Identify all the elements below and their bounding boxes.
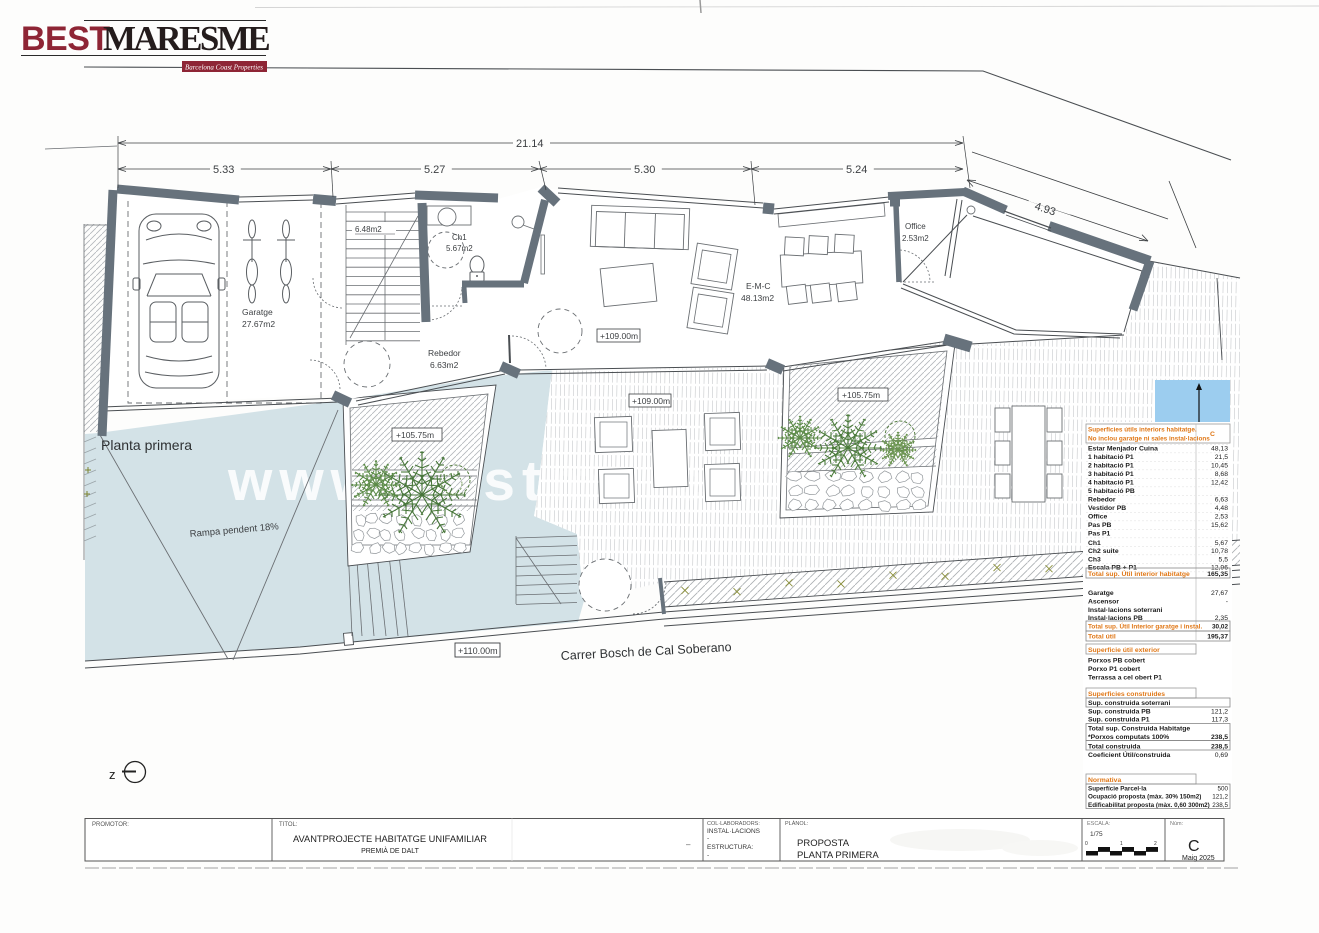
svg-text:Office: Office [1088,514,1107,521]
svg-text:4 habitació P1: 4 habitació P1 [1088,480,1134,487]
svg-text:5.67m2: 5.67m2 [446,244,473,253]
svg-text:Terrassa a cel obert P1: Terrassa a cel obert P1 [1088,675,1162,682]
svg-text:Barcelona Coast Properties: Barcelona Coast Properties [185,64,263,72]
svg-text:2 habitació P1: 2 habitació P1 [1088,463,1134,470]
svg-text:30,02: 30,02 [1212,624,1228,631]
svg-text:C: C [1210,431,1215,438]
svg-text:Superficies útils interiors ha: Superficies útils interiors habitatge. [1088,427,1197,434]
svg-text:PLANTA PRIMERA: PLANTA PRIMERA [797,850,879,861]
svg-text:195,37: 195,37 [1207,634,1228,641]
svg-text:Office: Office [905,222,926,231]
svg-text:C: C [1188,838,1200,855]
svg-text:Instal·lacions soterrani: Instal·lacions soterrani [1088,607,1163,614]
svg-text:1 habitació P1: 1 habitació P1 [1088,454,1134,461]
svg-text:*Porxos computats 100%: *Porxos computats 100% [1088,734,1169,741]
svg-text:Ch1: Ch1 [452,233,467,242]
svg-text:1/75: 1/75 [1090,831,1103,838]
svg-text:+105.75m: +105.75m [396,430,434,440]
svg-text:0,69: 0,69 [1215,752,1228,759]
svg-text:3 habitació P1: 3 habitació P1 [1088,471,1134,478]
svg-text:48,13: 48,13 [1211,446,1228,453]
svg-text:Estar Menjador Cuina: Estar Menjador Cuina [1088,446,1158,453]
svg-text:Sup. construida PB: Sup. construida PB [1088,709,1151,716]
svg-text:PROMOTOR:: PROMOTOR: [92,822,129,828]
svg-text:8,68: 8,68 [1215,471,1228,478]
svg-text:COL·LABORADORS:: COL·LABORADORS: [707,821,760,827]
svg-text:Porxos PB cobert: Porxos PB cobert [1088,658,1146,665]
svg-text:Núm:: Núm: [1170,821,1184,827]
svg-text:238,5: 238,5 [1211,744,1228,751]
svg-text:Vestidor PB: Vestidor PB [1088,505,1126,512]
svg-text:165,35: 165,35 [1207,571,1228,578]
svg-text:Ch2 suite: Ch2 suite [1088,548,1119,555]
svg-text:Rebedor: Rebedor [428,348,461,358]
svg-text:Normativa: Normativa [1088,777,1121,784]
svg-text:INSTAL·LACIONS: INSTAL·LACIONS [707,828,761,835]
svg-text:AVANTPROJECTE HABITATGE UNIFAM: AVANTPROJECTE HABITATGE UNIFAMILIAR [293,834,487,844]
svg-text:27,67: 27,67 [1211,590,1228,597]
svg-text:Maig 2025: Maig 2025 [1182,855,1215,862]
svg-text:5,5: 5,5 [1219,556,1229,563]
svg-text:–: – [686,840,691,849]
svg-text:121,2: 121,2 [1212,794,1228,801]
svg-text:5,67: 5,67 [1215,540,1228,547]
svg-text:PREMIÀ DE DALT: PREMIÀ DE DALT [361,846,420,855]
svg-text:4,48: 4,48 [1215,505,1228,512]
svg-text:Coeficient Útil/construida: Coeficient Útil/construida [1088,750,1171,759]
svg-text:Total sup. Construida Habitatg: Total sup. Construida Habitatge [1088,726,1190,733]
svg-text:Superficies construides: Superficies construides [1088,691,1165,698]
svg-text:Garatge: Garatge [1088,590,1114,597]
svg-text:Porxo P1 cobert: Porxo P1 cobert [1088,666,1141,673]
svg-text:5.33: 5.33 [213,164,234,176]
svg-text:ESCALA:: ESCALA: [1087,821,1111,827]
svg-text:0: 0 [1085,841,1088,847]
svg-text:PLÀNOL:: PLÀNOL: [785,820,809,827]
svg-text:-: - [707,852,709,859]
svg-text:2: 2 [1154,841,1157,847]
svg-text:Total útil: Total útil [1088,634,1116,641]
svg-text:ESTRUCTURA:: ESTRUCTURA: [707,844,753,851]
svg-text:5.24: 5.24 [846,164,867,176]
svg-text:Superficie útil exterior: Superficie útil exterior [1088,647,1160,654]
svg-text:Pas P1: Pas P1 [1088,531,1111,538]
svg-text:121,2: 121,2 [1211,709,1228,716]
svg-text:48.13m2: 48.13m2 [741,293,774,303]
svg-text:5 habitació PB: 5 habitació PB [1088,488,1135,495]
svg-text:E-M-C: E-M-C [746,281,771,291]
svg-text:238,5: 238,5 [1212,802,1228,809]
svg-text:Ch3: Ch3 [1088,556,1101,563]
svg-text:TITOL:: TITOL: [279,822,298,828]
svg-text:21,5: 21,5 [1215,454,1228,461]
svg-text:Total construida: Total construida [1088,744,1141,751]
svg-text:Ch1: Ch1 [1088,540,1101,547]
svg-text:Ascensor: Ascensor [1088,598,1119,605]
svg-text:117,3: 117,3 [1211,717,1228,724]
svg-text:+109.00m: +109.00m [632,396,670,406]
svg-text:Sup. construida soterrani: Sup. construida soterrani [1088,700,1170,707]
svg-text:238,5: 238,5 [1211,734,1228,741]
svg-text:2.53m2: 2.53m2 [902,234,929,243]
svg-text:Edificabilitat proposta (màx.: Edificabilitat proposta (màx. 0,60 300m2… [1088,802,1210,809]
svg-text:Total sup. Útil interior habit: Total sup. Útil interior habitatge [1088,569,1190,578]
svg-text:1: 1 [1120,841,1123,847]
svg-text:-: - [1226,598,1228,605]
svg-text:500: 500 [1217,786,1228,793]
svg-text:No inclou garatge ni sales ins: No inclou garatge ni sales instal·lacion… [1088,436,1210,443]
svg-text:BEST: BEST [21,20,110,58]
svg-text:PROPOSTA: PROPOSTA [797,838,850,849]
svg-text:21.14: 21.14 [516,138,544,150]
svg-text:+110.00m: +110.00m [458,646,498,656]
svg-text:+109.00m: +109.00m [600,331,638,341]
svg-text:MARESME: MARESME [103,19,269,58]
svg-text:6.63m2: 6.63m2 [430,360,459,370]
svg-text:Ocupació proposta (màx. 30% 15: Ocupació proposta (màx. 30% 150m2) [1088,794,1201,801]
svg-text:Superfície Parcel·la: Superfície Parcel·la [1088,786,1147,793]
svg-text:Garatge: Garatge [242,307,273,317]
svg-text:Sup. construida P1: Sup. construida P1 [1088,717,1150,724]
svg-text:15,62: 15,62 [1211,522,1228,529]
svg-text:Planta primera: Planta primera [101,437,192,453]
svg-text:10,78: 10,78 [1211,548,1228,555]
svg-text:-: - [707,835,709,842]
svg-text:27.67m2: 27.67m2 [242,319,275,329]
svg-text:+105.75m: +105.75m [842,390,880,400]
svg-text:6,63: 6,63 [1215,497,1228,504]
svg-text:2,53: 2,53 [1215,514,1228,521]
svg-text:5.27: 5.27 [424,164,445,176]
svg-text:10,45: 10,45 [1211,463,1228,470]
svg-text:12,42: 12,42 [1211,480,1228,487]
svg-text:Rebedor: Rebedor [1088,497,1116,504]
svg-text:z: z [109,767,116,782]
svg-text:6.48m2: 6.48m2 [355,225,382,234]
svg-text:Pas PB: Pas PB [1088,522,1112,529]
svg-text:Total sup. Útil Interior garat: Total sup. Útil Interior garatge i insta… [1088,622,1202,631]
svg-text:5.30: 5.30 [634,164,655,176]
